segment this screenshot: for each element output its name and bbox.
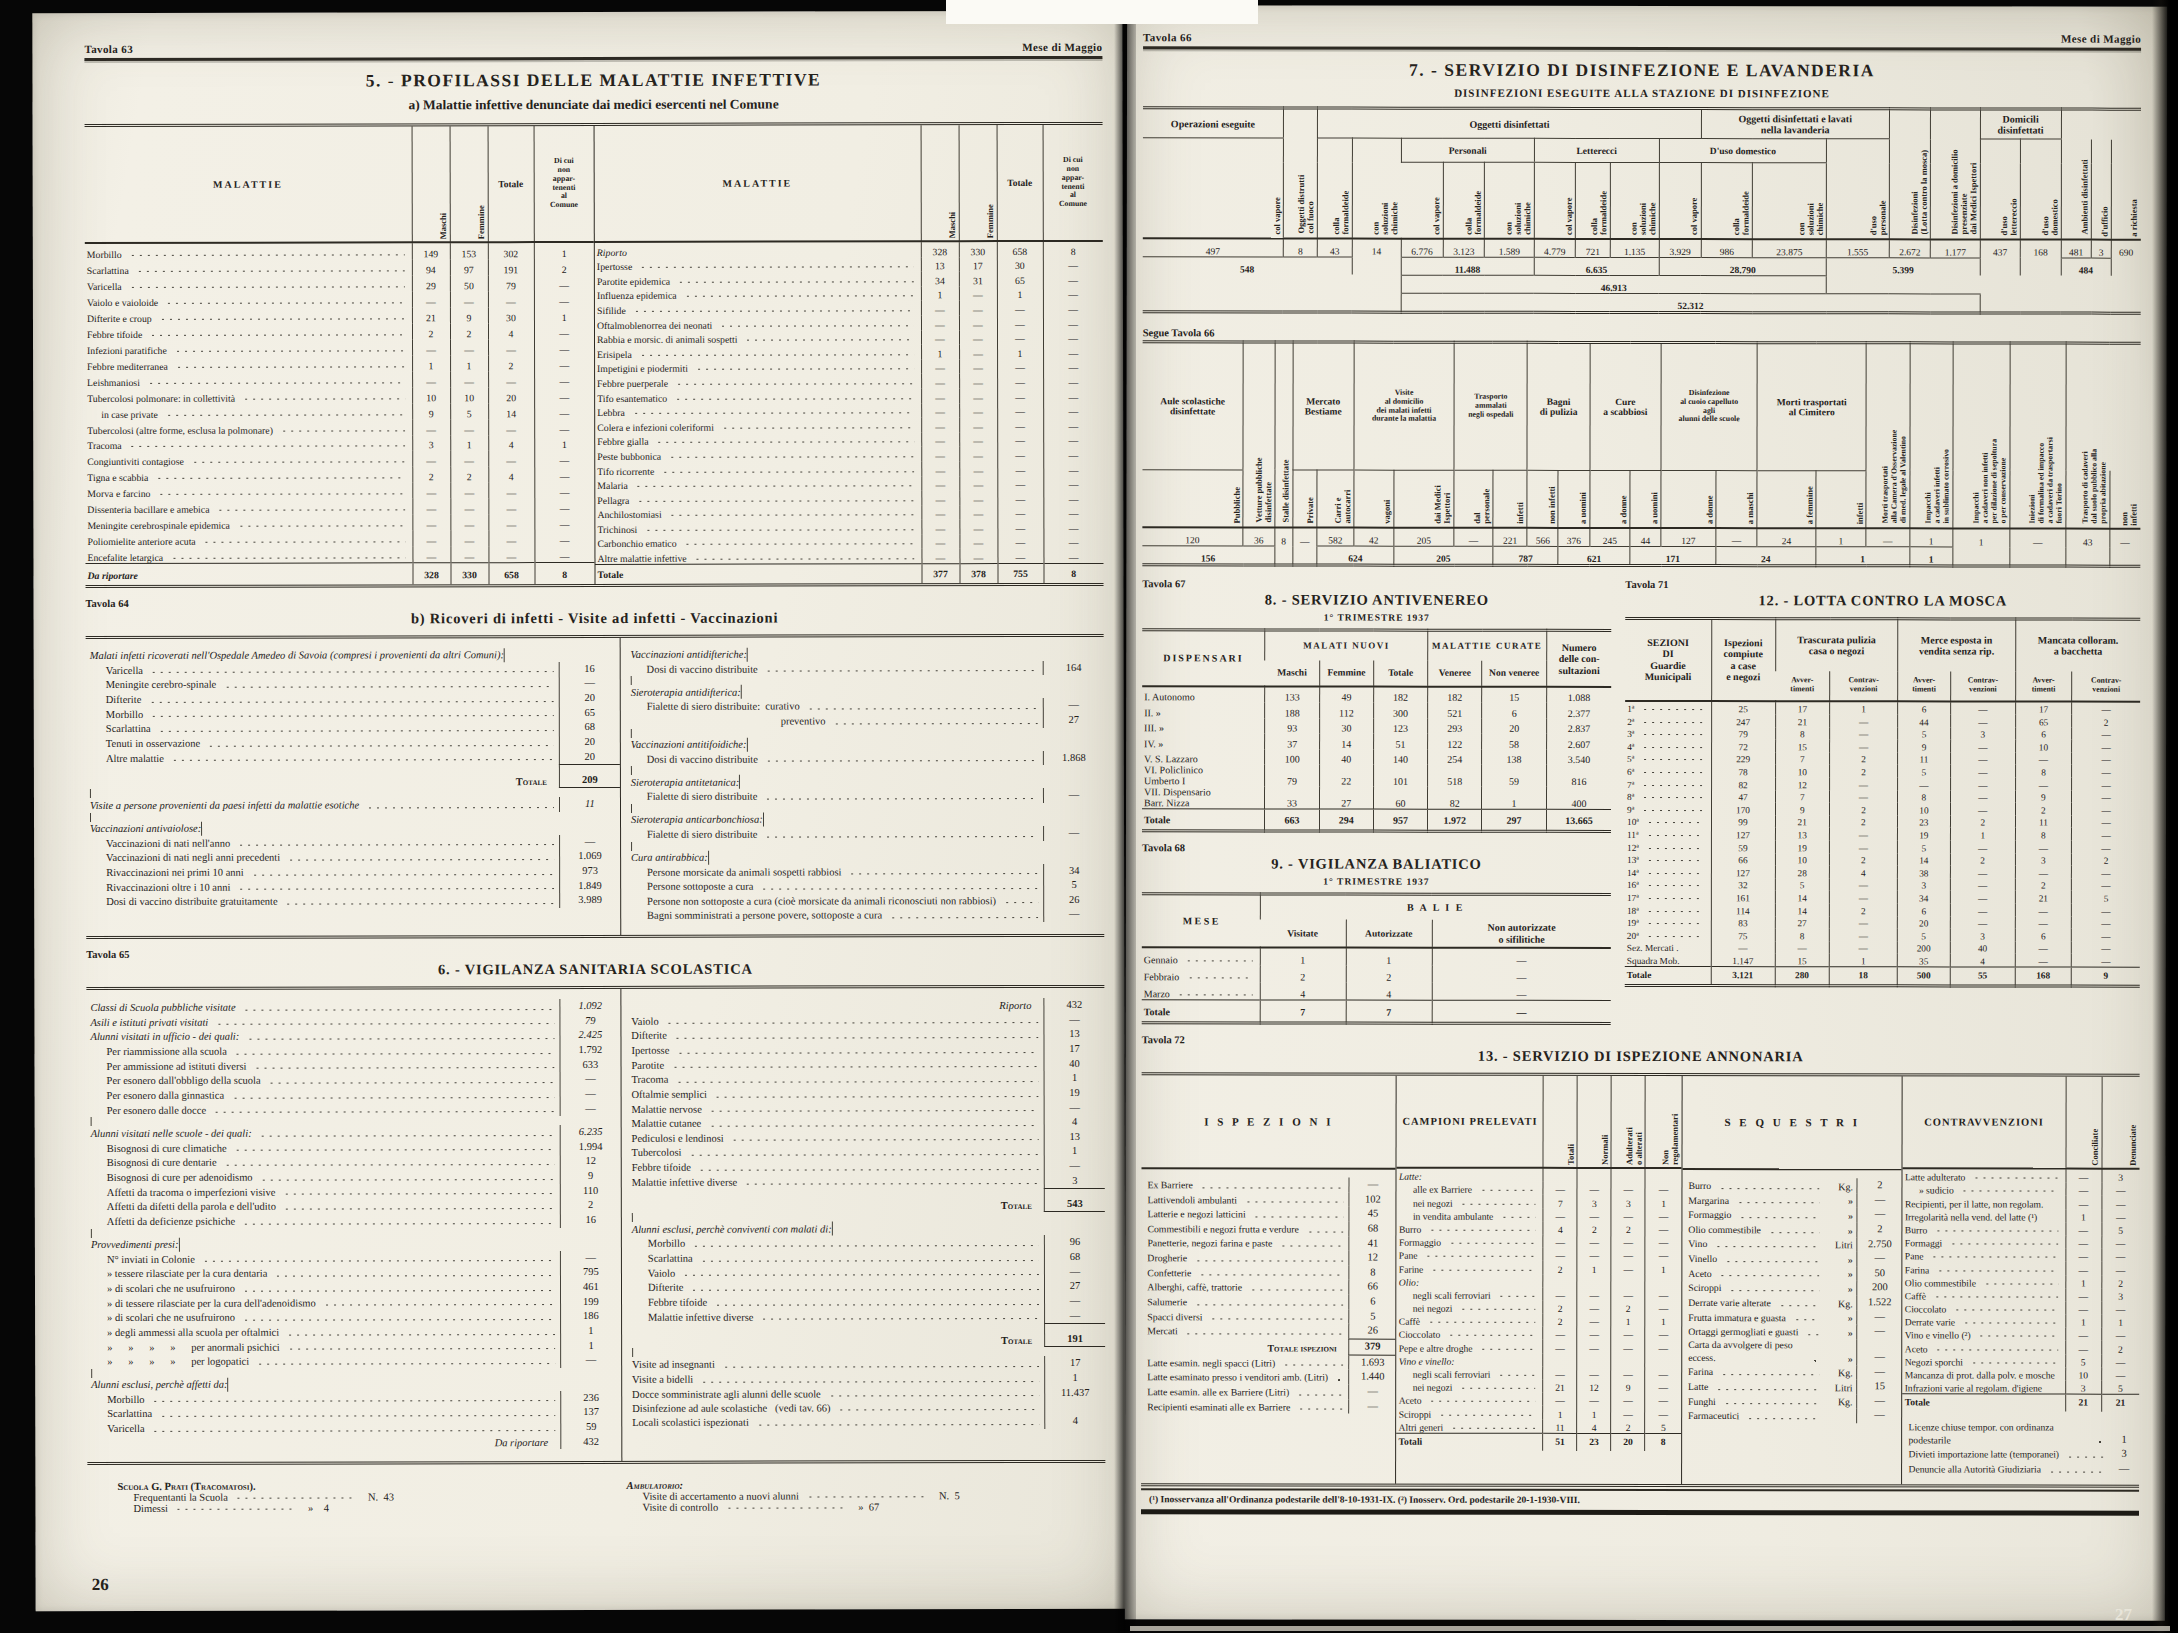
- dot-leader: [700, 1259, 1039, 1263]
- list-label: Totale: [1001, 1199, 1044, 1213]
- list-label: Farina: [1688, 1366, 1713, 1379]
- table-cell: 9: [1611, 1380, 1645, 1393]
- table-body: Gennaio11—Febbraio22—Marzo44—Totale77—: [1142, 947, 1611, 1023]
- dot-leader: [674, 1036, 1039, 1040]
- unit-label: Kg.: [1825, 1366, 1857, 1379]
- list-row: Totale ispezioni379: [1147, 1338, 1396, 1355]
- table-cell: 2: [1830, 752, 1898, 765]
- table-row: Totale6632949571.97229713.665: [1142, 809, 1611, 831]
- dot-leader: [807, 707, 1038, 710]
- table-cell: 1: [1909, 528, 1952, 547]
- table-cell: —: [534, 323, 594, 339]
- list-value: [632, 1213, 693, 1222]
- dot-leader: [242, 1289, 555, 1293]
- table-cell: 4: [1829, 865, 1897, 878]
- list-label: Bisognosi di cure per adenoidismo: [91, 1171, 253, 1185]
- list-value: 20: [559, 735, 620, 750]
- panel-sequestri: S E Q U E S T R I BurroKg.2Margarina»—Fo…: [1681, 1076, 1902, 1484]
- table-cell: 10: [1775, 765, 1829, 778]
- table-row: Trichinosi————: [595, 519, 1104, 535]
- table-cell: 127: [1711, 865, 1775, 878]
- table-cell: Riporto: [594, 241, 921, 257]
- table-head: MALATTIEMaschiFemmineTotaleDi cui non ap…: [594, 125, 1103, 242]
- list-label: Spacci diversi: [1147, 1311, 1202, 1324]
- list-value: 633: [559, 1058, 620, 1073]
- table-cell: 2.607: [1546, 734, 1611, 750]
- month-label-left: Mese di Maggio: [1022, 41, 1102, 53]
- table-cell: 9: [2071, 967, 2139, 986]
- table-cell: 7: [1543, 1195, 1577, 1208]
- list-row: Alunni visitati nelle scuole - dei quali…: [91, 1125, 621, 1141]
- list-label: Latte esamin. alle ex Barriere (Litri): [1147, 1386, 1289, 1399]
- list-value: 6: [1349, 1295, 1396, 1310]
- list-label: Sieroterapia antitetanica:: [631, 775, 739, 789]
- column-header: vagoni: [1354, 470, 1394, 528]
- column-header: MALATTIE CURATE: [1428, 630, 1547, 660]
- dot-leader: [1003, 901, 1038, 904]
- table-row: Febbre puerperale————: [595, 373, 1104, 389]
- scan-artifact-bottom: [1130, 1626, 2170, 1631]
- table-cell: 10: [412, 387, 450, 403]
- table-cell: [1543, 1168, 1577, 1182]
- ispezioni-title: I S P E Z I O N I: [1142, 1075, 1397, 1169]
- list-value: 2: [1857, 1222, 1902, 1237]
- table-cell: 200: [1897, 941, 1950, 954]
- list-value: —: [1044, 1159, 1105, 1174]
- dot-leader: [246, 1037, 554, 1041]
- table-row: Tigna e scabbia224—: [85, 466, 594, 483]
- list-value: 432: [560, 1435, 621, 1450]
- column-header: Iniezioni di formalina ed impacco a cada…: [2009, 343, 2066, 529]
- table-cell: —: [1829, 916, 1897, 929]
- table-cell: —: [2101, 1196, 2139, 1209]
- table-cell: —: [450, 483, 488, 499]
- list-value: —: [1857, 1193, 1902, 1208]
- table-cell: —: [1645, 1209, 1681, 1222]
- table-cell: 566: [1527, 528, 1558, 547]
- table-cell: Dissenteria bacillare e amebica: [85, 499, 412, 516]
- table-row: Scarlattina94971912: [85, 259, 594, 276]
- table-cell: 153: [450, 242, 488, 259]
- table-cell: » sudicio: [1903, 1183, 2066, 1196]
- table-cell: 9: [1898, 740, 1951, 753]
- list-row: Vaccinazioni di nati negli anni preceden…: [90, 849, 620, 865]
- table-cell: 1: [1645, 1314, 1681, 1327]
- table-cell: [1980, 293, 2141, 312]
- list-value: 3.989: [559, 893, 620, 908]
- table-cell: 8: [1043, 241, 1103, 257]
- list-label: Latte: [1688, 1381, 1708, 1394]
- table-cell: I. Autonomo: [1142, 686, 1265, 703]
- note-label: Frequentanti la Scuola: [117, 1492, 228, 1503]
- dot-leader: [285, 902, 554, 906]
- tavola-67-label: Tavola 67: [1142, 578, 1611, 590]
- list-value: —: [560, 1251, 621, 1266]
- table-cell: 6: [1898, 701, 1951, 715]
- list-row: Bagni somministrati a persone povere, so…: [631, 907, 1104, 923]
- table-cell: 40: [1950, 941, 2015, 954]
- table-cell: —: [921, 461, 959, 476]
- dot-leader: [1297, 1408, 1343, 1411]
- list-label: Febbre tifoide: [632, 1161, 691, 1175]
- column-header: M E S E: [1142, 893, 1260, 947]
- column-header: Femmine: [959, 125, 997, 241]
- list-row: Persone sottoposte a cura5: [631, 878, 1104, 894]
- table-row: 4ª7215—9—10—: [1625, 739, 2140, 752]
- table-vigilanza-title: 6. - VIGILANZA SANITARIA SCOLASTICA: [86, 960, 1104, 979]
- column-header: Totale: [488, 126, 534, 242]
- table-cell: 31: [959, 271, 997, 286]
- table-cell: Ipertosse: [594, 257, 921, 272]
- table-cell: —: [450, 451, 488, 467]
- table-cell: 18: [1829, 967, 1897, 986]
- table-cell: 14: [1775, 891, 1829, 904]
- table-cell: 1.135: [1610, 238, 1659, 257]
- table-cell: —: [2015, 752, 2071, 765]
- table-cell: 7: [1346, 1000, 1432, 1023]
- column-header: Contrav- venzioni: [1830, 671, 1898, 701]
- column-header: Personali: [1401, 138, 1534, 162]
- table-row: Riporto3283306588: [594, 241, 1103, 258]
- table-cell: 79: [1711, 727, 1775, 740]
- list-value: 13: [1044, 1130, 1105, 1145]
- table-cell: 28: [1775, 865, 1829, 878]
- list-label: Malattie infettive diverse: [632, 1310, 754, 1324]
- list-row: LatteLitri15: [1688, 1379, 1902, 1394]
- table-profilassi-right: MALATTIEMaschiFemmineTotaleDi cui non ap…: [594, 125, 1104, 584]
- table-cell: 43: [1318, 238, 1352, 257]
- table-cell: 2: [1950, 853, 2015, 866]
- dot-leader: [849, 872, 1039, 875]
- list-value: 26: [1043, 893, 1104, 908]
- list-value: [178, 1237, 239, 1251]
- list-value: 15: [1857, 1379, 1902, 1394]
- tavola-71-label: Tavola 71: [1625, 579, 2140, 591]
- table-cell: Derrate varie: [1903, 1314, 2066, 1327]
- column-header: Autorizzate: [1346, 920, 1432, 948]
- list-label: Totale: [516, 775, 559, 789]
- table-cell: 2.672: [1889, 239, 1931, 258]
- table-cell: 182: [1428, 686, 1482, 703]
- table-cell: —: [959, 534, 997, 549]
- dot-leader: [1210, 1318, 1344, 1321]
- table-cell: 23: [1897, 815, 1950, 828]
- table-cell: Pane: [1397, 1248, 1543, 1261]
- table-cell: —: [1950, 903, 2015, 916]
- list-row: Morbillo236: [91, 1391, 621, 1407]
- table-row: Influenza epidemica1—1—: [594, 286, 1103, 302]
- table-cell: —: [1645, 1380, 1681, 1393]
- table-cell: nei negozi: [1397, 1301, 1543, 1314]
- table-cell: [2066, 547, 2109, 566]
- vigilanza-right-list: Riporto432Vaiolo—Difterite13Ipertosse17P…: [620, 988, 1105, 1461]
- table-row: 13ª6610214232: [1625, 853, 2140, 866]
- tavola-63-label: Tavola 63: [84, 43, 133, 55]
- table-row: Parotite epidemica343165—: [594, 271, 1103, 287]
- table-cell: 21: [1775, 714, 1829, 727]
- note-value: » 67: [850, 1502, 879, 1513]
- list-row: Dosi di vaccino distribuite164: [631, 661, 1104, 677]
- table-cell: [1953, 547, 2010, 566]
- table-cell: —: [1645, 1235, 1681, 1248]
- list-row: Bisognosi di cure per adenoidismo9: [91, 1169, 621, 1185]
- table-cell: —: [959, 388, 997, 403]
- dot-leader: [237, 843, 554, 847]
- table-cell: 2: [1829, 815, 1897, 828]
- list-row: Totale543: [632, 1188, 1105, 1213]
- table-cell: 986: [1701, 239, 1752, 258]
- list-value: 379: [1349, 1339, 1396, 1356]
- column-header: Visitate: [1260, 919, 1346, 947]
- table-row: Encefalite letargica————: [85, 546, 594, 564]
- dot-leader: [150, 670, 554, 674]
- list-row: Visite a persone provenienti da paesi in…: [90, 797, 620, 813]
- table-baliatico: M E S EB A L I EVisitateAutorizzateNon a…: [1142, 892, 1611, 1025]
- dot-leader: [765, 759, 1038, 763]
- dot-leader: [688, 1153, 1038, 1157]
- table-cell: —: [1043, 490, 1103, 505]
- unit-label: »: [1825, 1253, 1857, 1266]
- dot-leader: [744, 1182, 1039, 1186]
- list-value: 11.437: [1044, 1385, 1105, 1400]
- dot-leader: [2066, 1456, 2104, 1459]
- column-header: colla formaldeide: [1576, 162, 1610, 238]
- column-header: Maschi: [412, 126, 450, 242]
- table-row: Leishmaniosi————: [85, 371, 594, 388]
- note-label: Visite di controllo: [626, 1502, 718, 1513]
- table-cell: 14: [1897, 853, 1950, 866]
- table-cell: Caffè: [1903, 1288, 2066, 1301]
- table-cell: 1: [1543, 1406, 1577, 1419]
- table-cell: 46.913: [1401, 275, 1826, 294]
- table-cell: —: [1454, 528, 1493, 547]
- table-cell: —: [1950, 878, 2015, 891]
- dot-leader: [268, 1081, 555, 1085]
- table-cell: —: [488, 451, 534, 467]
- table-row: Latte adulterato—3: [1903, 1168, 2140, 1183]
- dot-leader: [235, 1497, 355, 1500]
- table-cell: —: [1577, 1182, 1611, 1195]
- table-cell: 14ª: [1625, 865, 1711, 878]
- table-cell: 1: [997, 286, 1043, 301]
- table-cell: —: [921, 519, 959, 534]
- table-cell: 27: [1319, 787, 1373, 810]
- table-cell: —: [997, 359, 1043, 374]
- table-cell: Poliomielite anteriore acuta: [85, 531, 412, 548]
- list-row: Malati infetti ricoverati nell'Ospedale …: [90, 648, 620, 663]
- table-cell: —: [534, 482, 594, 498]
- unit-label: Litri: [1825, 1381, 1857, 1394]
- unit-label: »: [1825, 1312, 1857, 1325]
- table-cell: 300: [1373, 703, 1427, 719]
- list-label: Divieti importazione latte (temporanei): [1909, 1449, 2060, 1462]
- table-cell: 2.837: [1546, 718, 1611, 734]
- dot-leader: [254, 1066, 555, 1070]
- table-row: Febbraio22—: [1142, 965, 1611, 983]
- list-value: 66: [1349, 1280, 1396, 1295]
- table-cell: Lebbra: [595, 403, 922, 418]
- table-cell: 6: [2015, 929, 2071, 942]
- table-cell: —: [534, 450, 594, 466]
- list-label: Vaccinazioni di nati negli anni preceden…: [90, 851, 280, 865]
- list-label: Alunni visitati nelle scuole - dei quali…: [91, 1127, 252, 1141]
- note-value: N. 43: [360, 1492, 394, 1503]
- table-head: DISPENSARIMALATI NUOVIMALATTIE CURATENum…: [1142, 630, 1611, 687]
- table-cell: —: [1645, 1327, 1681, 1340]
- panel-ispezioni: I S P E Z I O N I Ex Barriere—Lattivendo…: [1141, 1075, 1396, 1483]
- table-cell: —: [450, 514, 488, 530]
- table-cell: —: [1829, 828, 1897, 841]
- column-header: dai Medici Ispettori: [1394, 470, 1454, 528]
- table-cell: Formaggio: [1397, 1235, 1543, 1248]
- table-cell: 82: [1711, 777, 1775, 790]
- table-cell: [1645, 1354, 1681, 1367]
- table-cell: —: [1043, 344, 1103, 359]
- list-row: Latterie e negozi latticini45: [1147, 1207, 1396, 1222]
- table-cell: Sez. Mercati .: [1625, 941, 1711, 954]
- table-cell: 5: [1775, 878, 1829, 891]
- table-cell: —: [2072, 778, 2140, 791]
- list-label: » di scolari che ne usufruirono: [91, 1311, 235, 1325]
- table-cell: —: [1577, 1301, 1611, 1314]
- school-note: Scuola G. Prati (Tracomatosi). Frequenta…: [87, 1480, 596, 1514]
- list-value: 1: [560, 1338, 621, 1353]
- table-cell: —: [2072, 701, 2140, 715]
- list-label: Affetti da tracoma o imperfezioni visive: [91, 1185, 276, 1199]
- column-header: Non veneree: [1482, 660, 1547, 686]
- list-label: Alunni esclusi, perchè affetti da:: [91, 1378, 227, 1392]
- table-cell: 75: [1711, 928, 1775, 941]
- table-cell: —: [921, 476, 959, 491]
- list-value: 45: [1349, 1207, 1396, 1222]
- table-head: Aule scolastiche disinfettateVetture pub…: [1142, 341, 2140, 528]
- table-cell: —: [2065, 1301, 2101, 1314]
- list-value: 12: [560, 1154, 621, 1169]
- table-row: 5ª2297211———: [1625, 752, 2140, 765]
- table-row: Sifilide————: [594, 300, 1103, 316]
- list-value: 1.849: [559, 879, 620, 894]
- column-header: Conciliate: [2066, 1077, 2102, 1169]
- dot-leader: [671, 1065, 1038, 1069]
- table-cell: [1543, 1353, 1577, 1366]
- table-cell: —: [2101, 1249, 2139, 1262]
- list-row: FarinaKg.—: [1688, 1365, 1902, 1380]
- table-cell: —: [1645, 1393, 1681, 1406]
- table-cell: 2: [1950, 815, 2015, 828]
- table-row: Febbre gialla————: [595, 432, 1104, 448]
- table-cell: 3: [1950, 727, 2015, 740]
- table-cell: 65: [2015, 715, 2071, 728]
- column-header: Ambienti disinfettati: [2061, 109, 2092, 239]
- contravvenzioni-extra-list: Licenze chiuse tempor. con ordinanza pod…: [1903, 1412, 2140, 1477]
- table-cell: 10ª: [1625, 815, 1711, 828]
- list-row: Vaccinazioni di nati nell'anno—: [90, 835, 620, 851]
- list-value: [504, 648, 565, 662]
- list-value: 4: [1044, 1115, 1105, 1130]
- table-cell: —: [1043, 359, 1103, 374]
- list-label: Bagni somministrati a persone povere, so…: [631, 909, 882, 923]
- column-header: Normali: [1577, 1076, 1611, 1168]
- table-cell: Vino e vinello (²): [1903, 1328, 2066, 1341]
- table-row: Febbre tifoide224—: [85, 323, 594, 340]
- table-row: Febbre mediterranea112—: [85, 355, 594, 372]
- table-cell: —: [1829, 891, 1897, 904]
- dot-leader: [259, 1134, 555, 1138]
- column-header: Morti trasportati al Cimitero: [1757, 342, 1866, 470]
- table-cell: —: [959, 490, 997, 505]
- column-header: Morti trasportati alla Camera d'Osservaz…: [1866, 342, 1910, 528]
- table-cell: 254: [1428, 749, 1482, 765]
- table-cell: 2: [1829, 853, 1897, 866]
- list-label: Ipertosse: [631, 1044, 669, 1058]
- dot-leader: [283, 1207, 555, 1211]
- table-cell: Totale: [1625, 966, 1711, 985]
- list-value: 1: [1044, 1371, 1105, 1386]
- table-cell: 27: [1775, 916, 1829, 929]
- list-value: 1.994: [560, 1140, 621, 1155]
- table-cell: —: [1577, 1235, 1611, 1248]
- table-cell: —: [1866, 528, 1909, 547]
- tavola-64-label: Tavola 64: [86, 596, 1104, 609]
- list-label: Sieroterapia antidifterica:: [631, 685, 741, 699]
- page-right-header: Tavola 66 Mese di Maggio: [1143, 31, 2141, 44]
- dot-leader: [1335, 1379, 1344, 1382]
- table-cell: 2: [1543, 1301, 1577, 1314]
- table-row: 17ª16114—34—215: [1625, 890, 2140, 903]
- list-label: Olio commestibile: [1688, 1224, 1761, 1237]
- table-cell: 437: [1980, 239, 2021, 258]
- top-rule-right: [1143, 46, 2141, 50]
- column-header: dal personale: [1454, 470, 1493, 528]
- table-cell: 2: [2072, 715, 2140, 728]
- list-label: preventivo: [631, 714, 826, 728]
- table-cell: 497: [1143, 238, 1284, 257]
- dot-leader: [1198, 1274, 1343, 1277]
- list-value: 1.092: [559, 999, 620, 1014]
- table-cell: Latte adulterato: [1903, 1168, 2066, 1182]
- column-header: colla formaldeide: [1701, 163, 1753, 239]
- list-label: Persone morsicate da animali sospetti ra…: [631, 865, 842, 879]
- table-cell: 12: [1577, 1380, 1611, 1393]
- table-cell: —: [1611, 1209, 1645, 1222]
- list-value: [91, 1229, 152, 1238]
- table-cell: 114: [1711, 903, 1775, 916]
- column-header: con soluzioni chimiche: [1610, 162, 1659, 238]
- table-cell: 24: [1757, 528, 1816, 547]
- list-value: 27: [1044, 1279, 1105, 1294]
- list-row: Ipertosse17: [631, 1042, 1104, 1058]
- table-cell: 112: [1319, 703, 1373, 719]
- note-label: Visite di accertamento a nuovi alunni: [626, 1491, 799, 1502]
- table-antivenereo: DISPENSARIMALATI NUOVIMALATTIE CURATENum…: [1142, 628, 1611, 832]
- list-value: [201, 821, 262, 835]
- table-cell: 20: [1897, 916, 1950, 929]
- column-header: non infetti: [1527, 470, 1558, 528]
- table-cell: Irregolarità nella vend. del latte (¹): [1903, 1209, 2066, 1222]
- table-cell: —: [997, 490, 1043, 505]
- list-label: Vino: [1688, 1239, 1707, 1252]
- table-cell: 400: [1546, 787, 1611, 810]
- dot-leader: [1720, 1373, 1820, 1376]
- table-cell: 5: [1898, 727, 1951, 740]
- table-cell: Meningite cerebrospinale epidemica: [85, 515, 412, 532]
- table-cell: 2: [450, 323, 488, 339]
- table-cell: 1: [921, 344, 959, 359]
- table-cell: II. »: [1142, 702, 1265, 718]
- list-label: Panetterie, negozi farina e paste: [1147, 1238, 1272, 1251]
- table-cell: 44: [1898, 714, 1951, 727]
- list-row: Salumerie6: [1147, 1294, 1396, 1309]
